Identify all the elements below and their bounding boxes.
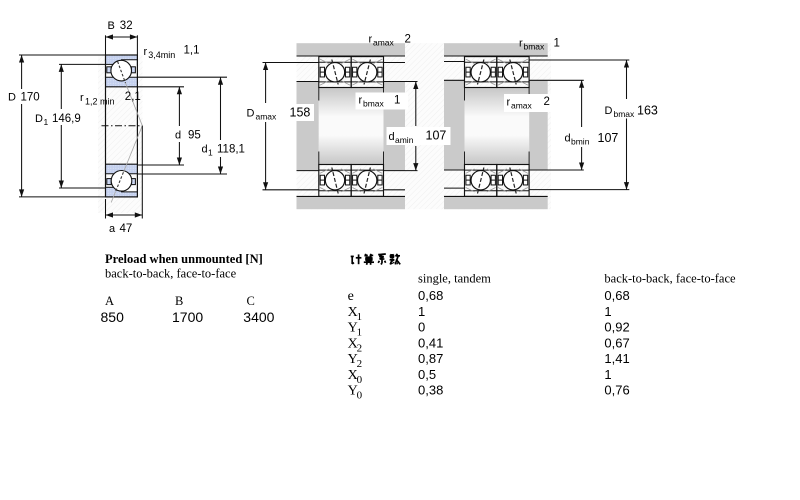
svg-text:1: 1 [604, 304, 611, 319]
svg-text:d: d [202, 144, 208, 156]
svg-text:163: 163 [637, 104, 658, 118]
svg-text:0,76: 0,76 [604, 383, 629, 398]
svg-text:r: r [507, 97, 511, 109]
svg-text:1: 1 [604, 367, 611, 382]
svg-text:95: 95 [188, 130, 201, 142]
svg-text:1: 1 [418, 304, 425, 319]
svg-text:e: e [348, 289, 354, 304]
svg-text:3400: 3400 [243, 309, 274, 325]
svg-text:107: 107 [598, 131, 619, 145]
svg-text:2,1: 2,1 [125, 91, 141, 103]
svg-text:0,87: 0,87 [418, 351, 443, 366]
svg-text:0,38: 0,38 [418, 383, 443, 398]
svg-text:bmax: bmax [363, 99, 385, 109]
svg-text:1700: 1700 [172, 309, 203, 325]
svg-text:r: r [144, 46, 148, 58]
svg-text:107: 107 [426, 129, 447, 143]
svg-text:amax: amax [511, 101, 533, 111]
svg-text:r: r [369, 34, 373, 46]
svg-text:1: 1 [44, 117, 49, 127]
svg-text:single, tandem: single, tandem [418, 272, 491, 286]
svg-text:a: a [109, 223, 116, 235]
svg-text:0,68: 0,68 [604, 288, 629, 303]
svg-text:1,1: 1,1 [184, 45, 200, 57]
svg-text:bmax: bmax [614, 109, 636, 119]
svg-text:0,68: 0,68 [418, 288, 443, 303]
svg-text:0: 0 [418, 320, 425, 335]
svg-text:0,67: 0,67 [604, 335, 629, 350]
svg-text:3,4min: 3,4min [148, 50, 175, 60]
svg-text:170: 170 [21, 92, 40, 104]
svg-text:bmax: bmax [524, 42, 546, 52]
svg-text:1,2 min: 1,2 min [85, 97, 115, 107]
svg-text:1: 1 [554, 38, 560, 50]
svg-text:bmin: bmin [571, 137, 590, 147]
svg-text:B: B [108, 20, 115, 32]
svg-text:2: 2 [405, 34, 411, 46]
svg-text:1: 1 [394, 95, 400, 107]
svg-text:back-to-back, face-to-face: back-to-back, face-to-face [105, 267, 237, 281]
svg-text:D: D [247, 108, 255, 120]
svg-text:850: 850 [101, 309, 125, 325]
svg-text:amax: amax [256, 112, 278, 122]
svg-text:2: 2 [544, 96, 550, 108]
svg-text:r: r [80, 92, 84, 104]
svg-text:1,41: 1,41 [604, 351, 629, 366]
svg-text:amax: amax [373, 38, 395, 48]
svg-text:D: D [605, 105, 613, 117]
svg-text:C: C [247, 294, 255, 308]
svg-text:d: d [175, 130, 181, 142]
svg-text:32: 32 [120, 20, 133, 32]
svg-text:D: D [8, 92, 16, 104]
svg-text:A: A [105, 294, 114, 308]
svg-text:158: 158 [290, 106, 311, 120]
svg-text:146,9: 146,9 [52, 113, 81, 125]
svg-text:d: d [389, 131, 395, 143]
svg-text:B: B [175, 294, 183, 308]
svg-text:r: r [519, 38, 523, 50]
svg-text:back-to-back, face-to-face: back-to-back, face-to-face [604, 272, 736, 286]
svg-text:r: r [359, 95, 363, 107]
svg-text:0,5: 0,5 [418, 367, 436, 382]
svg-text:1: 1 [208, 148, 213, 158]
svg-text:Preload when unmounted [N]: Preload when unmounted [N] [105, 252, 263, 266]
svg-text:D: D [35, 113, 43, 125]
svg-text:0: 0 [357, 390, 363, 402]
svg-text:47: 47 [120, 223, 133, 235]
svg-text:d: d [565, 133, 571, 145]
svg-text:amin: amin [395, 135, 414, 145]
svg-text:118,1: 118,1 [217, 144, 245, 156]
svg-text:0,41: 0,41 [418, 335, 443, 350]
svg-text:0,92: 0,92 [604, 320, 629, 335]
